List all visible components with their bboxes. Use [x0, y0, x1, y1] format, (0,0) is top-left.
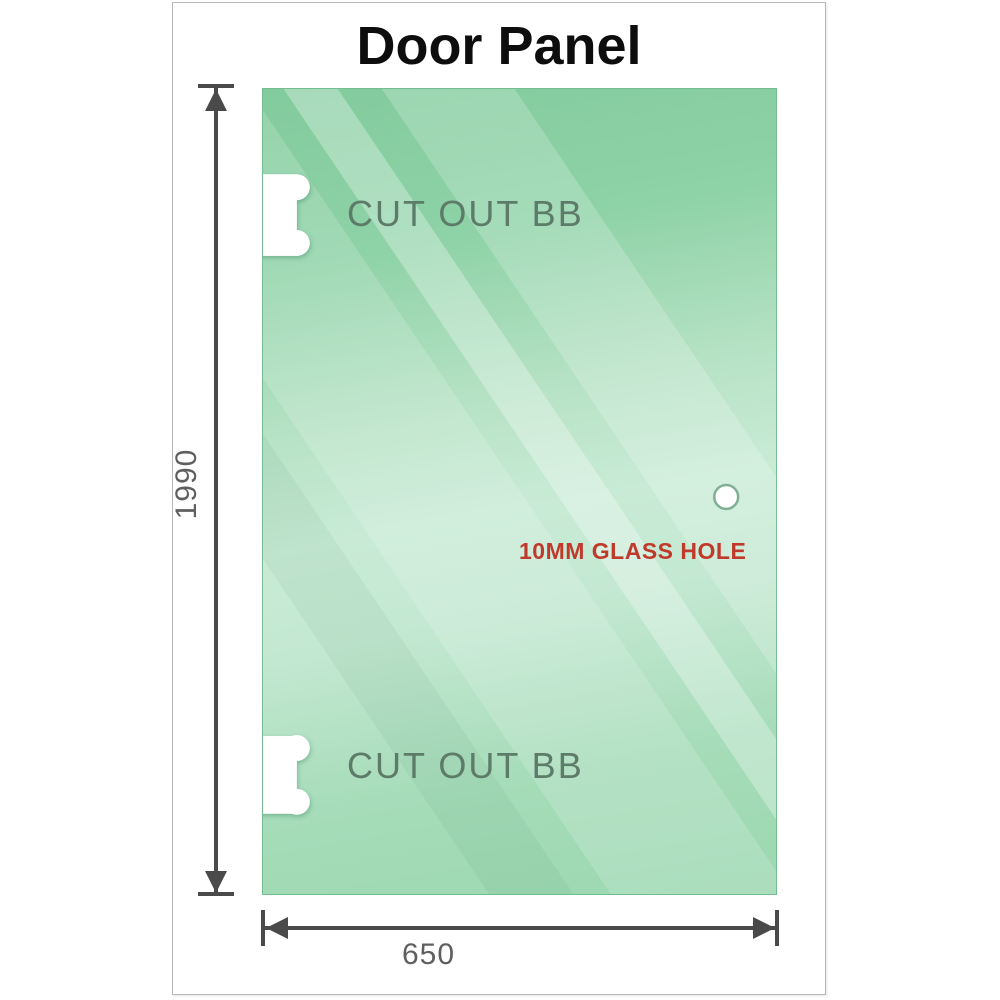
hinge-cutout-icon — [263, 174, 310, 256]
arrow-down-icon — [205, 871, 227, 893]
glass-hole-label: 10MM GLASS HOLE — [519, 538, 746, 565]
width-dimension-cap-left — [261, 910, 265, 946]
width-dimension-cap-right — [775, 910, 779, 946]
arrow-left-icon — [266, 917, 288, 939]
cutout-label-bottom: CUT OUT BB — [347, 745, 584, 787]
width-dimension-line — [263, 926, 777, 930]
height-dimension-label: 1990 — [157, 452, 217, 516]
glass-hole-icon — [714, 485, 738, 509]
arrow-right-icon — [753, 917, 775, 939]
hinge-cutout-icon — [263, 735, 310, 815]
height-dimension-cap-top — [198, 84, 234, 88]
width-dimension-label: 650 — [402, 938, 455, 972]
cutout-label-top: CUT OUT BB — [347, 193, 584, 235]
arrow-up-icon — [205, 89, 227, 111]
page-title: Door Panel — [173, 3, 825, 77]
glass-panel: CUT OUT BB CUT OUT BB 10MM GLASS HOLE — [262, 88, 777, 895]
